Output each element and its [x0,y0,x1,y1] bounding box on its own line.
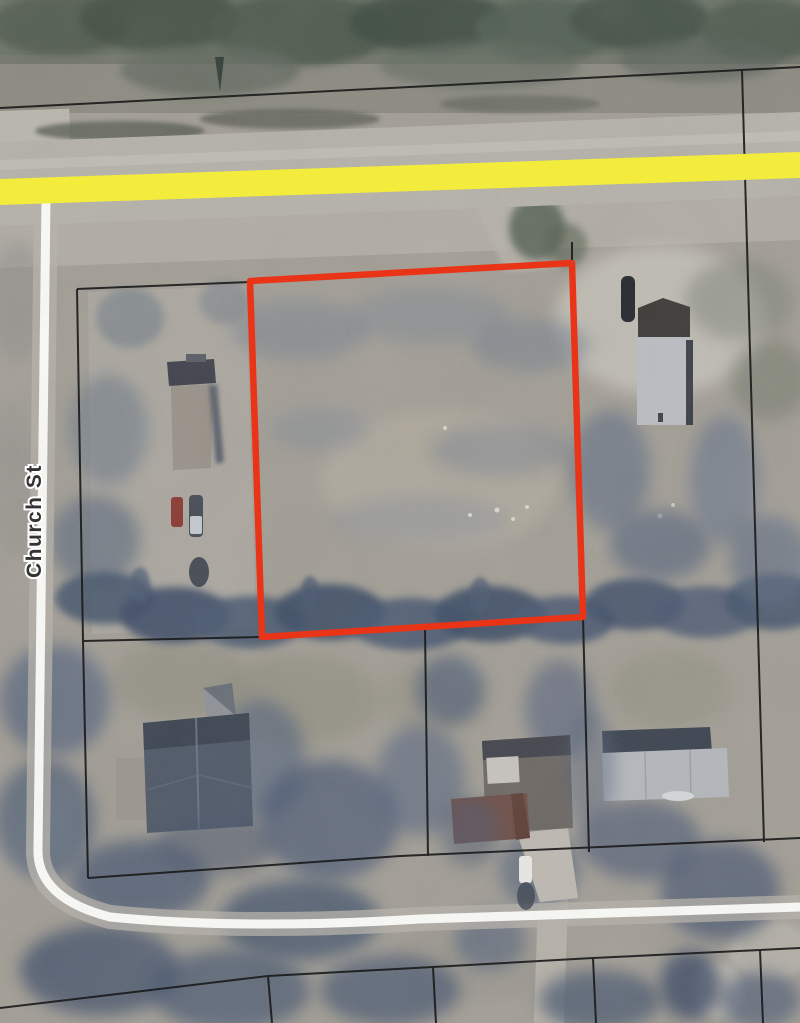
map-canvas: Church St [0,0,800,1023]
photo-grain-fine [0,0,800,1023]
aerial-map[interactable]: Church St [0,0,800,1023]
street-label: Church St [23,464,46,578]
